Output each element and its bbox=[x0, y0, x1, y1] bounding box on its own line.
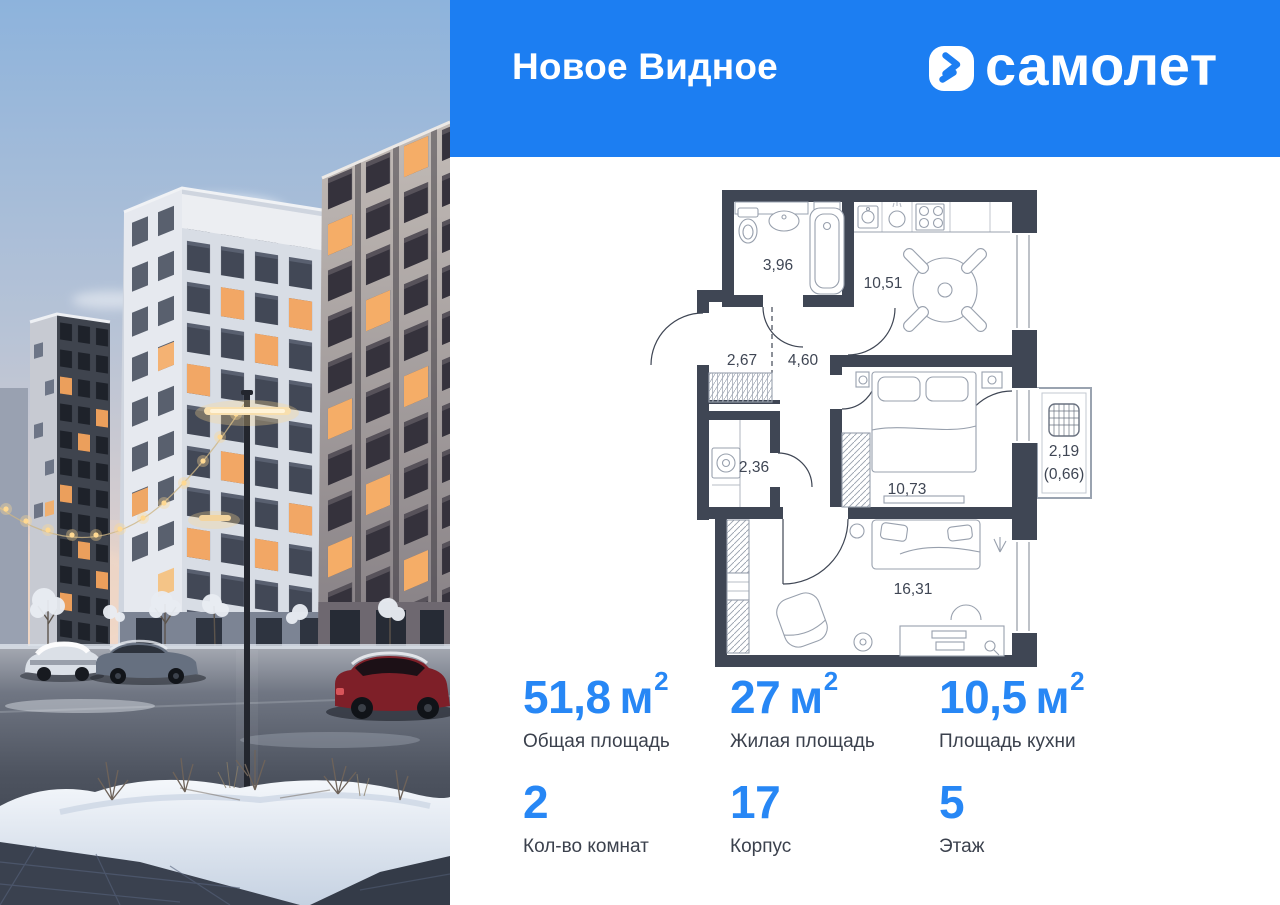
floorplan: 3,96 10,51 2,67 4,60 2,36 10,73 16,31 2,… bbox=[650, 190, 1095, 680]
header: Новое Видное самолет bbox=[450, 0, 1280, 157]
stat-building: 17 Корпус bbox=[730, 779, 937, 858]
stat-value: 2 bbox=[523, 779, 730, 825]
samolet-logo-icon bbox=[929, 46, 974, 96]
area-corridor: 4,60 bbox=[788, 352, 819, 369]
area-storage: 2,36 bbox=[739, 459, 769, 476]
stat-label: Общая площадь bbox=[523, 731, 730, 753]
area-living: 16,31 bbox=[894, 581, 933, 598]
area-balcony: 2,19 bbox=[1049, 443, 1079, 460]
area-balcony-reduced: (0,66) bbox=[1044, 466, 1085, 483]
brand-name: самолет bbox=[985, 43, 1218, 89]
stat-value: 17 bbox=[730, 779, 937, 825]
project-title: Новое Видное bbox=[512, 46, 778, 88]
stat-value: 5 bbox=[939, 779, 1146, 825]
area-bathroom: 3,96 bbox=[763, 257, 793, 274]
stat-value: 51,8м2 bbox=[523, 674, 730, 720]
stat-kitchen-area: 10,5м2 Площадь кухни bbox=[939, 674, 1146, 753]
building-middle bbox=[110, 180, 340, 677]
listing-card: Новое Видное самолет bbox=[450, 0, 1280, 905]
area-kitchen: 10,51 bbox=[864, 275, 903, 292]
project-photo bbox=[0, 0, 450, 905]
area-bedroom: 10,73 bbox=[888, 481, 927, 498]
brand-logo: самолет bbox=[929, 46, 1218, 96]
stat-label: Жилая площадь bbox=[730, 731, 937, 753]
stat-total-area: 51,8м2 Общая площадь bbox=[523, 674, 730, 753]
furniture bbox=[709, 202, 1010, 656]
stat-value: 10,5м2 bbox=[939, 674, 1146, 720]
area-hallway: 2,67 bbox=[727, 352, 757, 369]
stat-label: Площадь кухни bbox=[939, 731, 1146, 753]
winter-scene-illustration bbox=[0, 0, 450, 905]
windows bbox=[1010, 233, 1039, 633]
stat-label: Этаж bbox=[939, 836, 1146, 858]
stat-rooms-count: 2 Кол-во комнат bbox=[523, 779, 730, 858]
stat-value: 27м2 bbox=[730, 674, 937, 720]
stat-label: Корпус bbox=[730, 836, 937, 858]
stat-living-area: 27м2 Жилая площадь bbox=[730, 674, 937, 753]
stat-floor: 5 Этаж bbox=[939, 779, 1146, 858]
stat-label: Кол-во комнат bbox=[523, 836, 730, 858]
floorplan-drawing: 3,96 10,51 2,67 4,60 2,36 10,73 16,31 2,… bbox=[650, 190, 1095, 680]
